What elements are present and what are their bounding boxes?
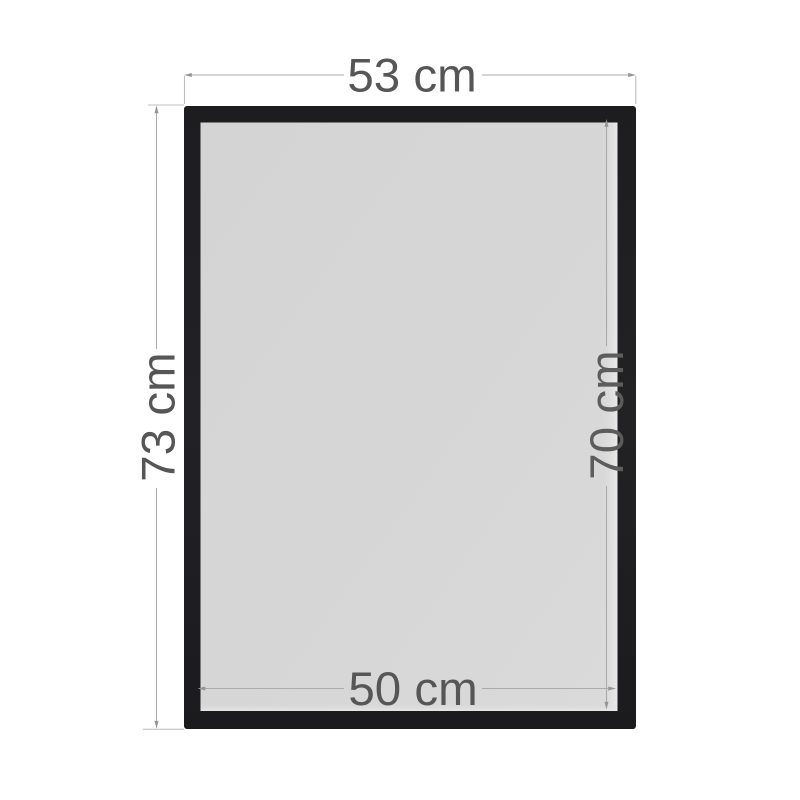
svg-text:73 cm: 73 cm: [133, 352, 186, 481]
svg-text:70 cm: 70 cm: [581, 350, 634, 479]
svg-text:50 cm: 50 cm: [348, 663, 477, 716]
svg-text:53 cm: 53 cm: [347, 50, 476, 103]
